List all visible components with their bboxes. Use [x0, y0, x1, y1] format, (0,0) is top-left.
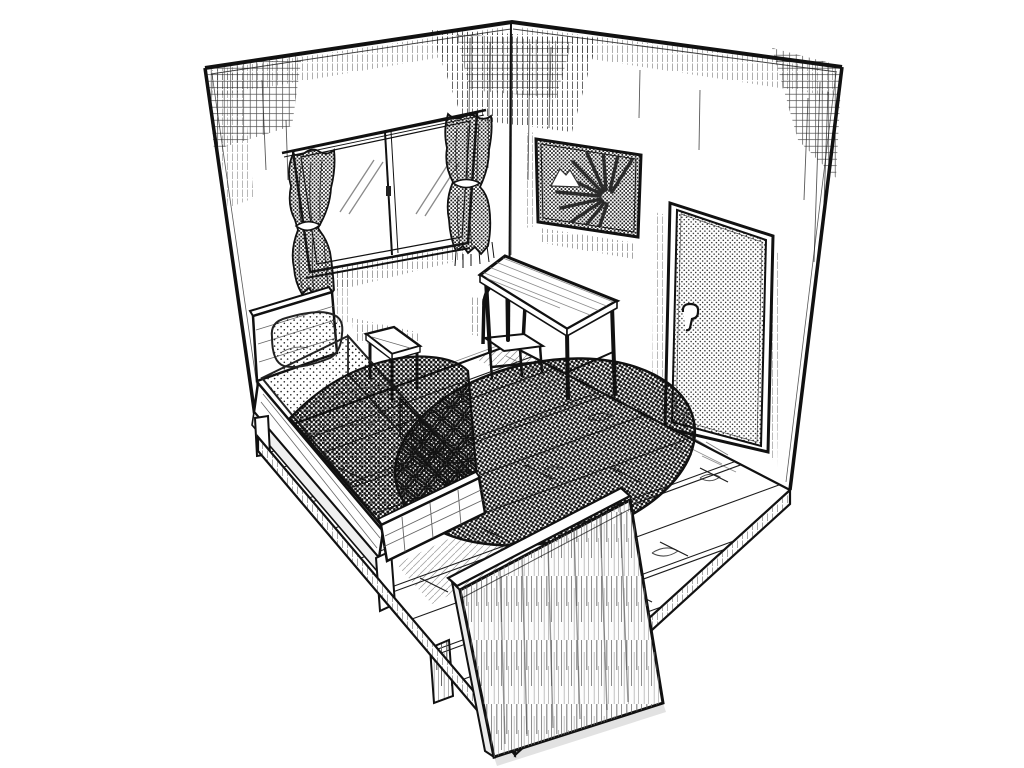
room-illustration-canvas	[0, 0, 1024, 768]
sunburst-poster	[536, 139, 641, 240]
manga-room-illustration: Isometric cutaway drawing of a small bed…	[0, 0, 1024, 768]
